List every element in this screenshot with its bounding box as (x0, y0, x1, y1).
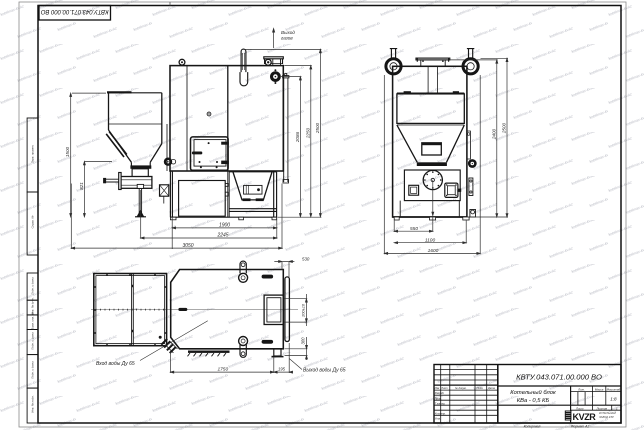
svg-text:1100: 1100 (425, 238, 436, 244)
svg-text:Инв. № подл.: Инв. № подл. (31, 395, 35, 413)
svg-text:Лист: Лист (440, 387, 447, 390)
svg-text:Выход: Выход (281, 30, 295, 35)
svg-text:Перв. примен.: Перв. примен. (31, 144, 35, 163)
svg-text:Вход воды Ду 65: Вход воды Ду 65 (96, 361, 135, 367)
svg-text:2086: 2086 (295, 131, 300, 143)
svg-text:Подп.: Подп. (477, 386, 484, 390)
svg-text:300: 300 (301, 337, 306, 345)
svg-text:KVZR: KVZR (573, 412, 597, 422)
svg-text:Дата: Дата (487, 386, 495, 390)
svg-text:Инв. № дубл.: Инв. № дубл. (31, 297, 35, 314)
svg-text:Листов: Листов (596, 406, 608, 410)
svg-text:2500: 2500 (502, 122, 507, 134)
svg-text:1900: 1900 (219, 223, 230, 229)
svg-text:Пров.: Пров. (435, 396, 442, 400)
svg-text:2245: 2245 (216, 233, 228, 239)
svg-text:2400: 2400 (491, 128, 496, 140)
svg-text:Разраб.: Разраб. (435, 391, 445, 395)
svg-text:КВа - 0,5 КБ: КВа - 0,5 КБ (517, 398, 550, 404)
svg-text:Копировал: Копировал (524, 425, 541, 429)
svg-text:Утв.: Утв. (435, 417, 441, 421)
svg-text:Котельный блок: Котельный блок (510, 389, 556, 396)
svg-text:Справ. №: Справ. № (31, 216, 35, 229)
svg-text:821: 821 (79, 182, 84, 190)
svg-text:Масса: Масса (595, 387, 604, 391)
svg-text:№ докум.: № докум. (455, 386, 467, 390)
svg-text:Подп. и дата: Подп. и дата (31, 361, 35, 379)
svg-text:1500: 1500 (65, 146, 70, 157)
svg-text:КВТУ.043.071.00.000 ВО: КВТУ.043.071.00.000 ВО (40, 8, 108, 14)
svg-text:Изм: Изм (435, 387, 440, 390)
svg-text:2500: 2500 (315, 122, 320, 134)
svg-text:Взам. инв. №: Взам. инв. № (31, 312, 35, 329)
svg-text:550: 550 (410, 226, 418, 232)
svg-text:195: 195 (278, 367, 286, 372)
svg-text:Масштаб: Масштаб (607, 387, 621, 391)
svg-text:Подп. и дата: Подп. и дата (31, 332, 35, 350)
svg-text:КВТУ.043.071.00.000 ВО: КВТУ.043.071.00.000 ВО (516, 373, 602, 382)
svg-text:1:8: 1:8 (610, 397, 617, 402)
svg-text:530: 530 (302, 257, 310, 262)
svg-text:газов: газов (281, 36, 293, 41)
svg-text:200±10: 200±10 (301, 303, 306, 318)
svg-text:Т.контр.: Т.контр. (435, 401, 446, 405)
svg-text:2250: 2250 (305, 127, 310, 139)
svg-text:Выход воды Ду 65: Выход воды Ду 65 (303, 368, 346, 374)
svg-text:1750: 1750 (217, 367, 228, 373)
svg-text:Формат А2: Формат А2 (571, 425, 590, 429)
svg-text:3050: 3050 (182, 243, 193, 249)
svg-text:Лист: Лист (575, 406, 584, 410)
svg-text:ЗАВОД КЗР: ЗАВОД КЗР (599, 415, 614, 419)
svg-text:1600: 1600 (428, 248, 439, 254)
svg-text:КОТЕЛЬНЫЙ: КОТЕЛЬНЫЙ (599, 411, 616, 415)
svg-text:Н.контр.: Н.контр. (435, 411, 446, 415)
svg-text:Лит.: Лит. (577, 387, 585, 391)
svg-text:Подп. и дата: Подп. и дата (31, 277, 35, 295)
